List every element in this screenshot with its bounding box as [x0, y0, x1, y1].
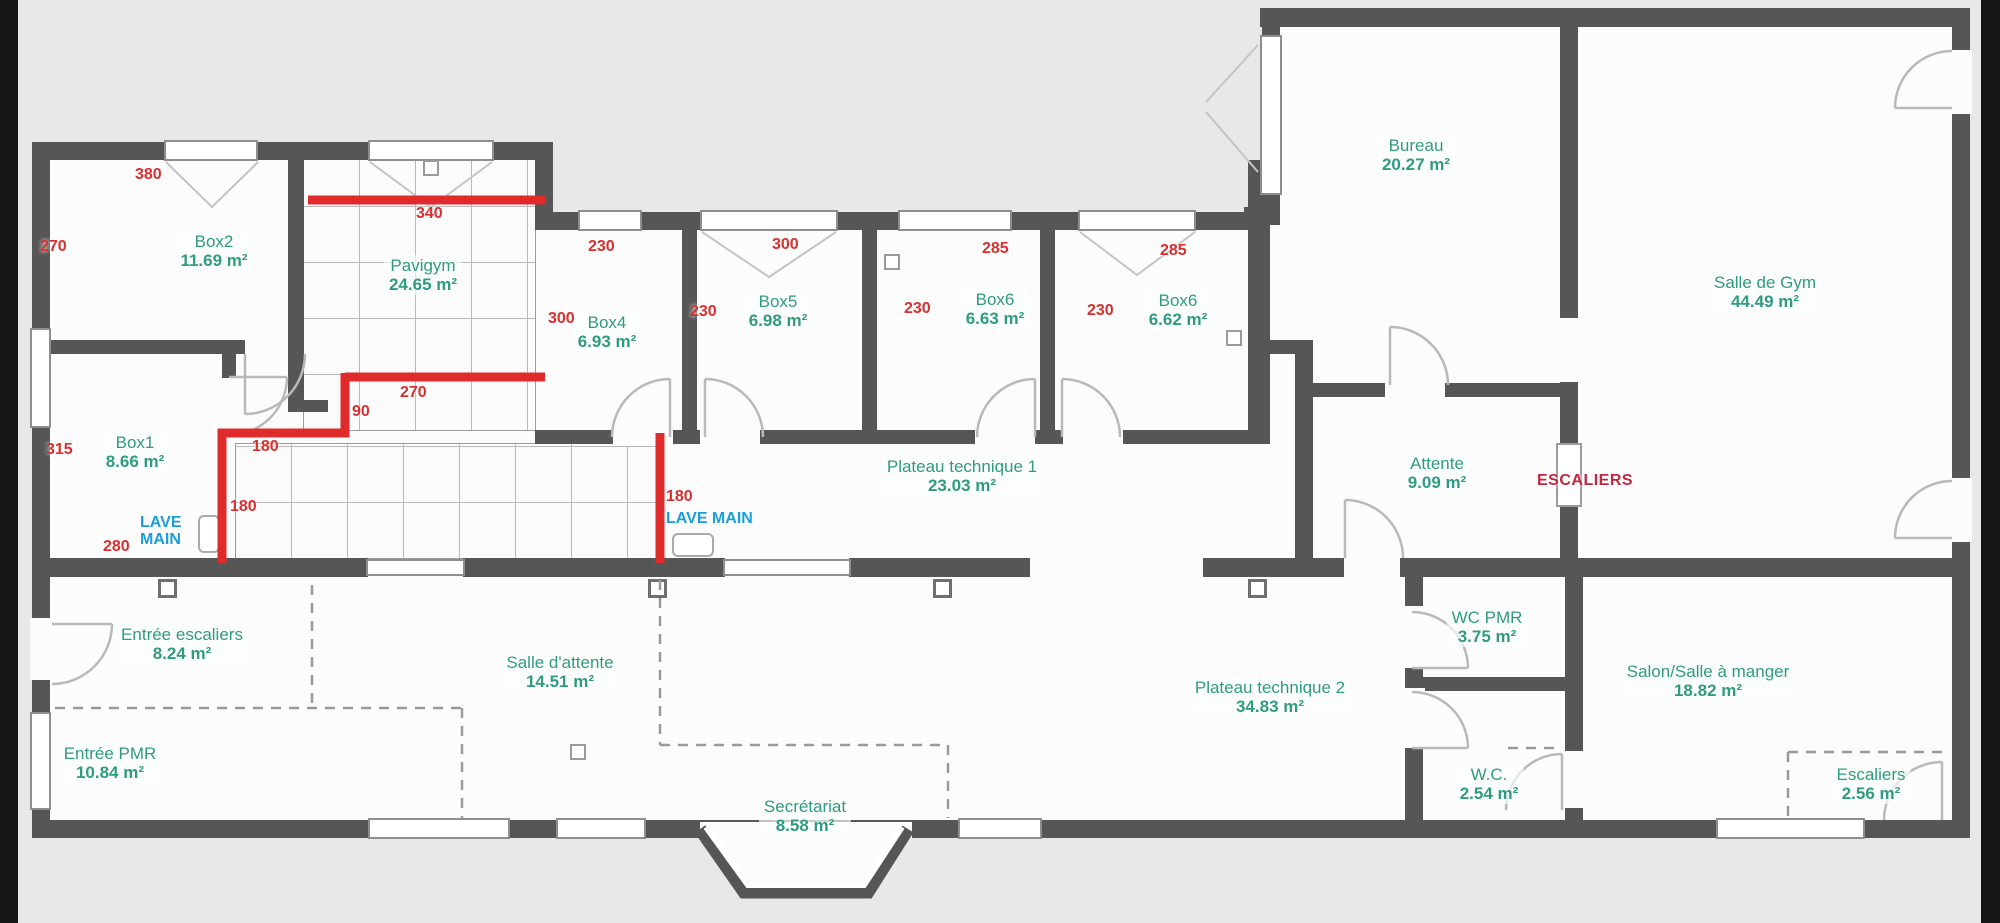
- wall: [1405, 677, 1583, 691]
- dimension-label: 230: [904, 300, 931, 318]
- room-label-wc-pmr: WC PMR3.75 m²: [1447, 607, 1528, 647]
- pillar: [933, 579, 952, 598]
- wall: [1565, 691, 1583, 751]
- room-name: Box1: [106, 433, 165, 452]
- room-label-wc: W.C.2.54 m²: [1455, 764, 1524, 804]
- room-name: Escaliers: [1837, 765, 1906, 784]
- pillar: [158, 579, 177, 598]
- room-label-salon-salle-a-manger: Salon/Salle à manger18.82 m²: [1622, 661, 1795, 701]
- room-name: Bureau: [1382, 136, 1450, 155]
- room-name: WC PMR: [1452, 608, 1523, 627]
- sink-icon: [672, 533, 714, 557]
- room-area: 8.58 m²: [764, 816, 846, 835]
- sink-icon: [198, 515, 220, 553]
- vent-icon: [423, 160, 439, 176]
- room-label-escaliers: Escaliers2.56 m²: [1832, 764, 1911, 804]
- window: [1078, 210, 1196, 231]
- room-name: W.C.: [1460, 765, 1519, 784]
- door-opening: [700, 428, 760, 446]
- wall: [222, 348, 236, 378]
- wall: [32, 558, 368, 577]
- dimension-label: 230: [1087, 302, 1114, 320]
- dimension-label: 90: [352, 403, 370, 421]
- room-label-box1: Box18.66 m²: [101, 432, 170, 472]
- wall: [288, 400, 328, 412]
- room-label-salle-de-gym: Salle de Gym44.49 m²: [1709, 272, 1821, 312]
- room-name: Box6: [966, 290, 1025, 309]
- dimension-label: 270: [400, 384, 427, 402]
- vent-icon: [884, 254, 900, 270]
- dimension-label: 230: [690, 303, 717, 321]
- window: [723, 559, 851, 576]
- room-label-box5: Box56.98 m²: [744, 291, 813, 331]
- room-area: 20.27 m²: [1382, 155, 1450, 174]
- room-area: 23.03 m²: [887, 476, 1037, 495]
- dimension-label: 300: [772, 236, 799, 254]
- room-label-plateau-technique-1: Plateau technique 123.03 m²: [882, 456, 1042, 496]
- room-label-attente: Attente9.09 m²: [1403, 453, 1472, 493]
- window: [700, 210, 838, 231]
- vent-icon: [570, 744, 586, 760]
- wall: [1565, 577, 1583, 691]
- room-area: 2.54 m²: [1460, 784, 1519, 803]
- door-opening: [613, 428, 673, 446]
- room-name: Salle d'attente: [506, 653, 613, 672]
- pillar: [1248, 579, 1267, 598]
- room-label-entree-escaliers: Entrée escaliers8.24 m²: [116, 624, 248, 664]
- room-area: 3.75 m²: [1452, 627, 1523, 646]
- window: [898, 210, 1012, 231]
- room-label-box4: Box46.93 m²: [573, 312, 642, 352]
- door-opening: [1403, 606, 1425, 668]
- wall: [1040, 230, 1055, 430]
- room-name: Attente: [1408, 454, 1467, 473]
- window: [958, 818, 1042, 839]
- escaliers-label: ESCALIERS: [1537, 472, 1633, 490]
- room-area: 6.98 m²: [749, 311, 808, 330]
- room-area: 8.66 m²: [106, 452, 165, 471]
- room-name: Box4: [578, 313, 637, 332]
- pillar: [648, 579, 667, 598]
- room-name: Salle de Gym: [1714, 273, 1816, 292]
- room-area: 11.69 m²: [180, 251, 247, 270]
- wall: [862, 230, 877, 430]
- dimension-label: 270: [40, 238, 67, 256]
- room-name: Box2: [180, 232, 247, 251]
- wall: [48, 340, 245, 354]
- room-area: 10.84 m²: [64, 763, 157, 782]
- room-label-pavigym: Pavigym24.65 m²: [384, 255, 462, 295]
- room-label-entree-pmr: Entrée PMR10.84 m²: [59, 743, 162, 783]
- room-label-box6b: Box66.62 m²: [1144, 290, 1213, 330]
- room-area: 18.82 m²: [1627, 681, 1790, 700]
- corridor-tiles: [236, 444, 660, 558]
- floor-lower-band: [32, 577, 1970, 838]
- dimension-label: 340: [416, 205, 443, 223]
- dimension-label: 180: [252, 438, 279, 456]
- room-area: 6.63 m²: [966, 309, 1025, 328]
- window: [366, 559, 465, 576]
- room-area: 6.62 m²: [1149, 310, 1208, 329]
- dimension-label: 280: [103, 538, 130, 556]
- room-area: 6.93 m²: [578, 332, 637, 351]
- window: [164, 140, 258, 161]
- room-name: Box6: [1149, 291, 1208, 310]
- dimension-label: 180: [666, 488, 693, 506]
- wall: [1400, 558, 1952, 577]
- wall: [1295, 340, 1313, 577]
- door-opening: [1385, 381, 1445, 399]
- wall: [1203, 558, 1300, 577]
- room-label-box2: Box211.69 m²: [175, 231, 252, 271]
- room-label-bureau: Bureau20.27 m²: [1377, 135, 1455, 175]
- wall: [1300, 558, 1344, 577]
- floor-plan: Box211.69 m² Pavigym24.65 m² Box18.66 m²…: [0, 0, 2000, 923]
- wall: [1313, 383, 1578, 397]
- room-name: Entrée escaliers: [121, 625, 243, 644]
- dimension-label: 230: [588, 238, 615, 256]
- door-opening: [1950, 478, 1972, 542]
- door-opening: [1558, 318, 1580, 382]
- dimension-label: 180: [230, 498, 257, 516]
- screenshot-left-edge: [0, 0, 18, 923]
- dimension-label: 285: [982, 240, 1009, 258]
- lave-main-label: LAVE MAIN: [666, 511, 753, 528]
- dimension-label: 285: [1160, 242, 1187, 260]
- room-name: Salon/Salle à manger: [1627, 662, 1790, 681]
- room-area: 8.24 m²: [121, 644, 243, 663]
- room-area: 24.65 m²: [389, 275, 457, 294]
- wall: [288, 160, 304, 412]
- wall: [1952, 8, 1970, 838]
- window: [578, 210, 642, 231]
- room-name: Plateau technique 2: [1195, 678, 1345, 697]
- room-label-plateau-technique-2: Plateau technique 234.83 m²: [1190, 677, 1350, 717]
- room-area: 14.51 m²: [506, 672, 613, 691]
- door-opening: [975, 428, 1035, 446]
- window: [30, 712, 51, 810]
- room-label-box6a: Box66.63 m²: [961, 289, 1030, 329]
- room-name: Pavigym: [389, 256, 457, 275]
- wall: [1565, 808, 1583, 820]
- window: [1716, 818, 1865, 839]
- door-opening: [1950, 50, 1972, 114]
- screenshot-right-edge: [1981, 0, 2000, 923]
- room-label-salle-dattente: Salle d'attente14.51 m²: [501, 652, 618, 692]
- room-area: 2.56 m²: [1837, 784, 1906, 803]
- door-opening: [1403, 688, 1425, 748]
- room-area: 44.49 m²: [1714, 292, 1816, 311]
- window: [1260, 35, 1282, 195]
- dimension-label: 300: [548, 310, 575, 328]
- room-name: Box5: [749, 292, 808, 311]
- wall: [1260, 8, 1970, 27]
- dimension-label: 380: [135, 166, 162, 184]
- window: [368, 140, 494, 161]
- vent-icon: [1226, 330, 1242, 346]
- wall: [849, 558, 1030, 577]
- wall: [1248, 340, 1313, 354]
- window: [556, 818, 646, 839]
- lave-main-label: LAVE MAIN: [140, 515, 198, 549]
- room-name: Secrétariat: [764, 797, 846, 816]
- door-opening: [30, 618, 52, 680]
- door-opening: [1063, 428, 1123, 446]
- floor-bureau: [1262, 8, 1562, 383]
- room-area: 34.83 m²: [1195, 697, 1345, 716]
- room-label-secretariat: Secrétariat8.58 m²: [759, 796, 851, 836]
- window: [368, 818, 510, 839]
- window: [30, 328, 51, 428]
- dimension-label: 315: [46, 441, 73, 459]
- room-name: Plateau technique 1: [887, 457, 1037, 476]
- wall: [1244, 207, 1280, 225]
- bay-window: [700, 829, 908, 892]
- room-area: 9.09 m²: [1408, 473, 1467, 492]
- wall: [463, 558, 725, 577]
- wall: [682, 230, 697, 430]
- room-name: Entrée PMR: [64, 744, 157, 763]
